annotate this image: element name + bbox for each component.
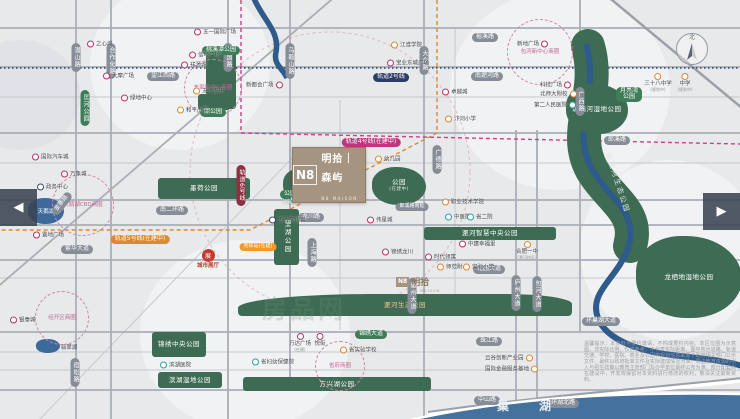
mall-icon (541, 41, 548, 48)
poi-marker: 绿地中心 (121, 95, 152, 102)
poi-marker: 云谷创新产业园 (485, 355, 533, 362)
poi-marker: 展城市展厅 (197, 249, 219, 269)
poi-label: 五一国际广场 (203, 29, 236, 35)
med-icon (445, 214, 452, 221)
park-area: 龙栖地湿地公园 (636, 236, 740, 318)
poi-marker: 职业技术学院 (442, 199, 484, 206)
business-circle: 经开区商圈 (35, 291, 89, 345)
business-circle: 包河新中心商圈 (507, 19, 573, 85)
road-label: 郎溪路 (604, 126, 630, 145)
poi-marker: 万达广场(在建) (289, 333, 311, 353)
mall-icon (316, 333, 323, 340)
poi-marker: 江淮学院 (391, 42, 422, 49)
sales-icon: 展 (201, 249, 214, 262)
poi-label: 卓越城 (451, 89, 468, 95)
poi-label: 城市展厅 (197, 263, 219, 269)
poi-label: 中学(规划中) (677, 81, 692, 93)
carousel-prev-button[interactable]: ◀ (0, 189, 37, 226)
poi-label: 滨湖医院 (169, 362, 191, 368)
project-subtitle: N8 MAISON (321, 196, 357, 201)
poi-marker: 汴河小学 (445, 116, 476, 123)
lake-label-chaohu: 巢湖 (497, 397, 581, 414)
project-phase2-logo: N8 明拾 N8 MAISON (396, 270, 440, 293)
poi-label: 之心城 (96, 41, 113, 47)
civic-icon (269, 217, 276, 224)
poi-label: 万象城 (70, 171, 87, 177)
poi-marker: 省实验学校 (340, 347, 377, 354)
poi-marker: 新都会广场 (246, 82, 283, 89)
project-logo-mark: N8 (293, 165, 317, 185)
poi-marker: 伟星城 (367, 217, 393, 224)
project-phase2-subtitle: N8 MAISON (411, 289, 440, 293)
road-label: 望江西路 (147, 62, 179, 81)
poi-label: 江淮学院 (400, 42, 422, 48)
edu-icon (531, 366, 538, 373)
poi-label: 和平小学 (186, 107, 208, 113)
poi-label: 国际汽车城 (41, 154, 69, 160)
mall-icon (296, 333, 303, 340)
poi-label: 伟星城 (376, 217, 393, 223)
compass-north-label: 北 (677, 34, 707, 42)
poi-marker: 大摩广场 (103, 73, 134, 80)
poi-label: 大摩广场 (112, 73, 134, 79)
poi-marker: 中学(规划中) (677, 73, 692, 93)
poi-label: 幼儿园 (384, 156, 401, 162)
poi-marker: 时代领寓 (425, 254, 456, 261)
mall-icon (189, 52, 196, 59)
metro-label: 轨道4号线(在建中) (342, 128, 401, 147)
mall-icon (121, 95, 128, 102)
poi-label: 新地广场 (517, 41, 539, 47)
park-area: 锦绣中央公园 (152, 332, 206, 357)
poi-label: 悦街 (314, 341, 325, 347)
poi-label: 中建幸福里 (468, 241, 496, 247)
road-label: 马鞍山路 (286, 43, 295, 83)
poi-marker: 置地广场 (33, 232, 64, 239)
metro-label: 匡河公园 (81, 90, 90, 130)
poi-label: 银泰城 (19, 317, 36, 323)
park-area: 淝河智慧中央公园 (424, 227, 556, 240)
poi-label: 信地广场 (198, 52, 220, 58)
poi-label: 锦绣龙川 (391, 249, 413, 255)
mall-icon (32, 154, 39, 161)
mall-icon (10, 317, 17, 324)
poi-marker: 三十八中学(规划中) (644, 73, 672, 93)
road-label: 南二环路 (156, 196, 188, 215)
poi-label: 政务中心 (46, 184, 68, 190)
poi-marker: 第二人民医院 (534, 102, 576, 109)
edu-icon (654, 73, 661, 80)
poi-label: 云谷创新产业园 (485, 355, 524, 361)
poi-label: 第二人民医院 (534, 102, 567, 108)
edu-icon (682, 73, 689, 80)
road-label: 环巢湖大道 (582, 307, 620, 326)
edu-icon (523, 241, 530, 248)
poi-label: 科技广场 (540, 82, 562, 88)
poi-marker: 祥源城 (181, 62, 207, 69)
poi-marker: 省妇幼保健院 (252, 359, 294, 366)
civic-icon (37, 184, 44, 191)
road-label: 南淝河路 (471, 62, 503, 81)
road-label: 潜山路 (72, 43, 81, 76)
poi-label: 五十五中 (202, 88, 224, 94)
metro-label: 锦绣大道 (355, 320, 387, 339)
watermark: 房品网 (262, 290, 346, 326)
mall-icon (367, 217, 374, 224)
road-label: 繁华大道 (61, 235, 93, 254)
poi-marker: 卓越城 (442, 89, 468, 96)
poi-marker: 万象城 (61, 171, 87, 178)
poi-marker: 和平小学 (177, 107, 208, 114)
road-label: 庐州大道 (512, 275, 521, 315)
med-icon (252, 359, 259, 366)
poi-label: 省妇幼保健院 (261, 359, 294, 365)
park-area: 滨湖湿地公园 (158, 372, 222, 388)
poi-label: 时代领寓 (434, 254, 456, 260)
poi-marker: 中建幸福里 (459, 241, 496, 248)
poi-marker: 新地广场 (517, 41, 548, 48)
mall-icon (564, 82, 571, 89)
poi-label: 工人文化宫 (278, 217, 306, 223)
edu-icon (177, 107, 184, 114)
edu-icon (463, 264, 470, 271)
edu-icon (445, 116, 452, 123)
poi-marker: 五十五中 (193, 88, 224, 95)
med-icon (569, 102, 576, 109)
poi-label: 宝业东城广场 (396, 60, 429, 66)
poi-label: 北师大附校 (540, 91, 568, 97)
road-label: 上海路 (308, 238, 317, 271)
poi-label: 三十八中学(规划中) (644, 81, 672, 93)
edu-icon (340, 347, 347, 354)
metro-label: 轨道6号线 (237, 165, 246, 210)
poi-label: 新都会广场 (246, 82, 274, 88)
poi-marker: 国际金融服务基地 (485, 366, 538, 373)
poi-label: 汴河小学 (454, 116, 476, 122)
poi-label: 职业技术学院 (451, 199, 484, 205)
poi-label: 国际金融服务基地 (485, 366, 529, 372)
poi-marker: 信地广场 (189, 52, 220, 59)
poi-marker: 北师大附校 (540, 91, 577, 98)
poi-label: 省实验学校 (349, 347, 377, 353)
poi-marker: 国际汽车城 (32, 154, 69, 161)
edu-icon (391, 42, 398, 49)
mall-icon (459, 241, 466, 248)
mall-icon (181, 62, 188, 69)
road-label: 包河大道 (533, 276, 542, 316)
project-phase2-name: 明拾 (411, 278, 429, 288)
poi-marker: 锦绣龙川 (382, 249, 413, 256)
road-label: 宿松路 (71, 358, 80, 391)
metro-label: 地铁站(在建) (240, 232, 277, 251)
mall-icon (87, 41, 94, 48)
poi-label: 置地广场 (42, 232, 64, 238)
edu-icon (570, 91, 577, 98)
edu-icon (375, 156, 382, 163)
poi-label: 绿地中心 (130, 95, 152, 101)
poi-marker: 省二院 (467, 214, 493, 221)
poi-marker: 宝业东城广场 (387, 60, 429, 67)
poi-marker: 之心城 (87, 41, 113, 48)
road-label: 裕溪路 (472, 23, 498, 42)
poi-label: 实验小学 (472, 264, 494, 270)
poi-marker: 工人文化宫 (269, 217, 306, 224)
carousel-next-button[interactable]: ▶ (703, 193, 740, 230)
mall-icon (382, 249, 389, 256)
poi-label: 祥源城 (190, 62, 207, 68)
mall-icon (103, 73, 110, 80)
edu-icon (442, 199, 449, 206)
road-label: 广德路 (433, 145, 442, 178)
mall-icon (33, 232, 40, 239)
compass: 北 (676, 33, 708, 65)
project-logo: N8 明拾｜森屿 N8 MAISON (292, 147, 366, 203)
poi-marker: 幼儿园 (375, 156, 401, 163)
poi-marker: 政务中心 (37, 184, 68, 191)
mall-icon (61, 171, 68, 178)
poi-marker: 悦街 (314, 333, 325, 347)
poi-marker: 实验小学 (463, 264, 494, 271)
mall-icon (276, 82, 283, 89)
poi-marker: 银泰城 (10, 317, 36, 324)
poi-marker: 科技广场 (540, 82, 571, 89)
poi-label: 万达广场(在建) (289, 341, 311, 353)
poi-label: 省二院 (476, 214, 493, 220)
road-label: 广西路 (576, 87, 585, 120)
disclaimer-text: 温馨提示：本资料为要约邀请，不构成要约内容。本区位图为示意图，非实际比例，仅供参… (584, 341, 736, 383)
metro-label: 轨道5号线(在建中) (111, 225, 170, 244)
mall-icon (425, 254, 432, 261)
poi-label: 合肥一中(淝河校区) (516, 249, 538, 261)
poi-marker: 五一国际广场 (194, 29, 236, 36)
map-canvas: 墨荷公园望湖公园公园(在建中)淝河智慧中央公园淝河生态公园锦绣中央公园滨湖湿地公… (0, 0, 740, 419)
mall-icon (442, 89, 449, 96)
med-icon (160, 362, 167, 369)
road-label: 郎溪路南延 (395, 192, 428, 211)
med-icon (467, 214, 474, 221)
road-label: 珠江路 (476, 327, 502, 346)
mall-icon (194, 29, 201, 36)
poi-marker: 合肥一中(淝河校区) (516, 241, 538, 261)
compass-needle-icon (677, 42, 707, 64)
project-name: 明拾｜森屿 (321, 154, 354, 184)
metro-label: 月亮湾公园 (616, 83, 642, 102)
edu-icon (193, 88, 200, 95)
edu-icon (526, 355, 533, 362)
poi-marker: 滨湖医院 (160, 362, 191, 369)
mall-icon (387, 60, 394, 67)
project-phase2-mark: N8 (396, 277, 409, 287)
